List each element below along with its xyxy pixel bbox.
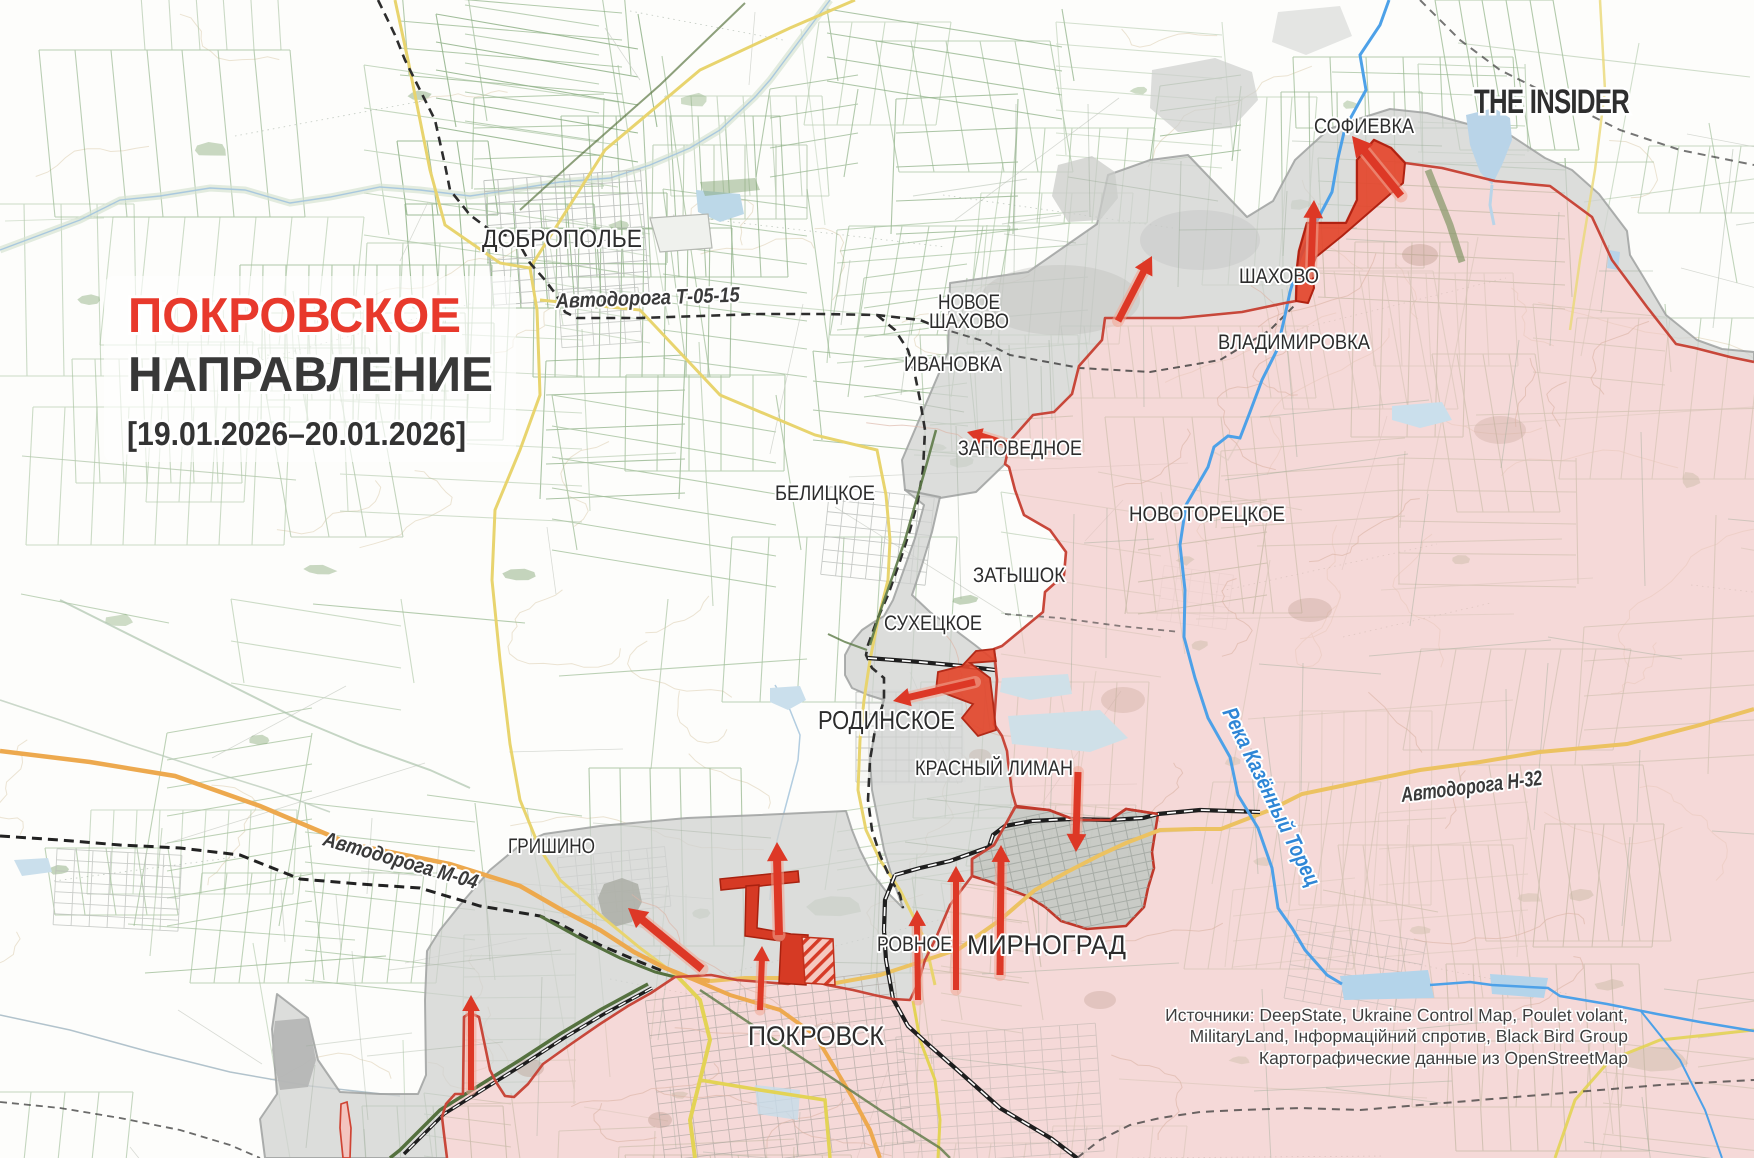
svg-text:СУХЕЦКОЕ: СУХЕЦКОЕ (884, 612, 982, 635)
svg-text:ЗАТЫШОК: ЗАТЫШОК (973, 564, 1066, 587)
svg-text:ГРИШИНО: ГРИШИНО (508, 835, 595, 858)
svg-text:[19.01.2026–20.01.2026]: [19.01.2026–20.01.2026] (127, 415, 466, 452)
svg-text:МИРНОГРАД: МИРНОГРАД (967, 930, 1126, 960)
svg-text:ПОКРОВСК: ПОКРОВСК (748, 1021, 884, 1051)
svg-text:Источники: DeepState, Ukraine: Источники: DeepState, Ukraine Control Ma… (1165, 1005, 1628, 1025)
svg-text:ВЛАДИМИРОВКА: ВЛАДИМИРОВКА (1218, 331, 1370, 354)
svg-text:БЕЛИЦКОЕ: БЕЛИЦКОЕ (775, 482, 875, 505)
svg-text:Картографические данные из Ope: Картографические данные из OpenStreetMap (1259, 1048, 1628, 1068)
svg-text:ШАХОВО: ШАХОВО (929, 310, 1009, 333)
svg-text:ЗАПОВЕДНОЕ: ЗАПОВЕДНОЕ (958, 437, 1082, 460)
svg-text:ШАХОВО: ШАХОВО (1239, 265, 1319, 288)
svg-text:ПОКРОВСКОЕ: ПОКРОВСКОЕ (128, 289, 461, 343)
svg-text:MilitaryLand, Інформаційний сп: MilitaryLand, Інформаційний спротив, Bla… (1190, 1026, 1628, 1046)
svg-text:НАПРАВЛЕНИЕ: НАПРАВЛЕНИЕ (128, 348, 493, 402)
svg-text:THE INSIDER: THE INSIDER (1474, 83, 1629, 121)
svg-text:СОФИЕВКА: СОФИЕВКА (1314, 115, 1414, 138)
svg-text:РОДИНСКОЕ: РОДИНСКОЕ (818, 705, 955, 735)
svg-text:НОВОТОРЕЦКОЕ: НОВОТОРЕЦКОЕ (1129, 503, 1285, 526)
svg-text:ДОБРОПОЛЬЕ: ДОБРОПОЛЬЕ (482, 225, 642, 253)
svg-text:ИВАНОВКА: ИВАНОВКА (904, 353, 1002, 376)
svg-text:КРАСНЫЙ ЛИМАН: КРАСНЫЙ ЛИМАН (915, 756, 1073, 780)
svg-text:РОВНОЕ: РОВНОЕ (877, 933, 952, 956)
